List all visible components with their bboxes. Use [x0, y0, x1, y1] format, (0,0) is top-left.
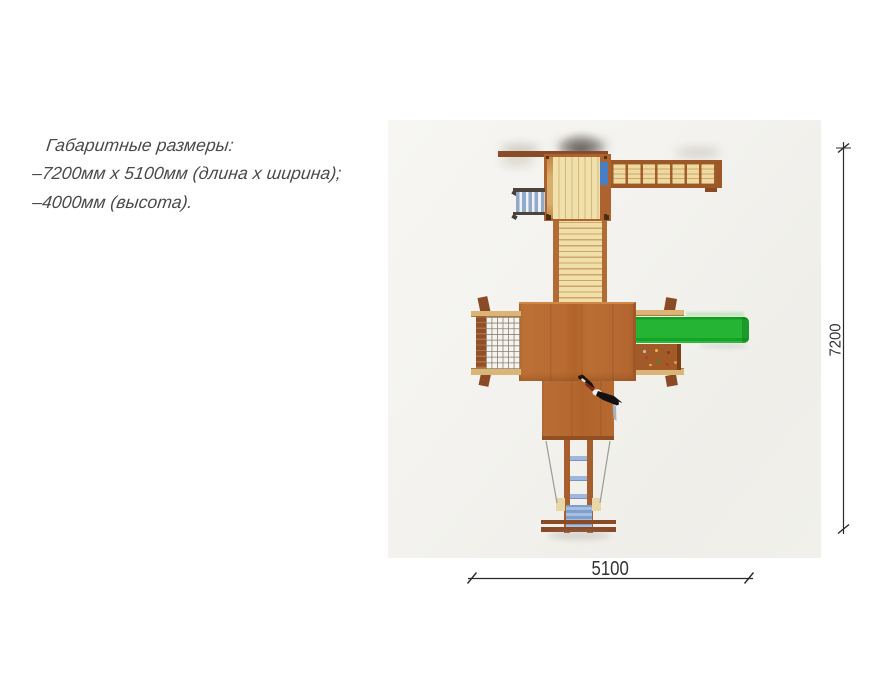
- svg-text:7200: 7200: [827, 323, 845, 356]
- svg-text:5100: 5100: [592, 556, 629, 579]
